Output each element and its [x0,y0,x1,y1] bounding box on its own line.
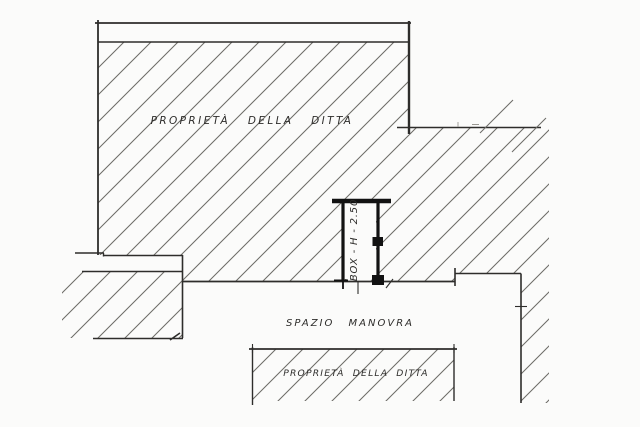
label-top-property: PROPRIETÀ DELLA DITTA [151,114,354,127]
faint-scan-marks [458,122,479,127]
region-left-property-block [62,272,182,338]
label-spazio-manovra: SPAZIO MANOVRA [286,318,414,329]
floor-plan-drawing: PROPRIETÀ DELLA DITTA SPAZIO MANOVRA PRO… [0,0,640,427]
label-box: BOX - H - 2.50 [349,199,360,281]
label-bottom-property: PROPRIETÀ DELLA DITTA [283,367,429,379]
scanned-floor-plan-page: PROPRIETÀ DELLA DITTA SPAZIO MANOVRA PRO… [0,0,640,427]
box-door-hinge-bottom [372,275,384,285]
box-door-hinge-top [373,237,384,246]
